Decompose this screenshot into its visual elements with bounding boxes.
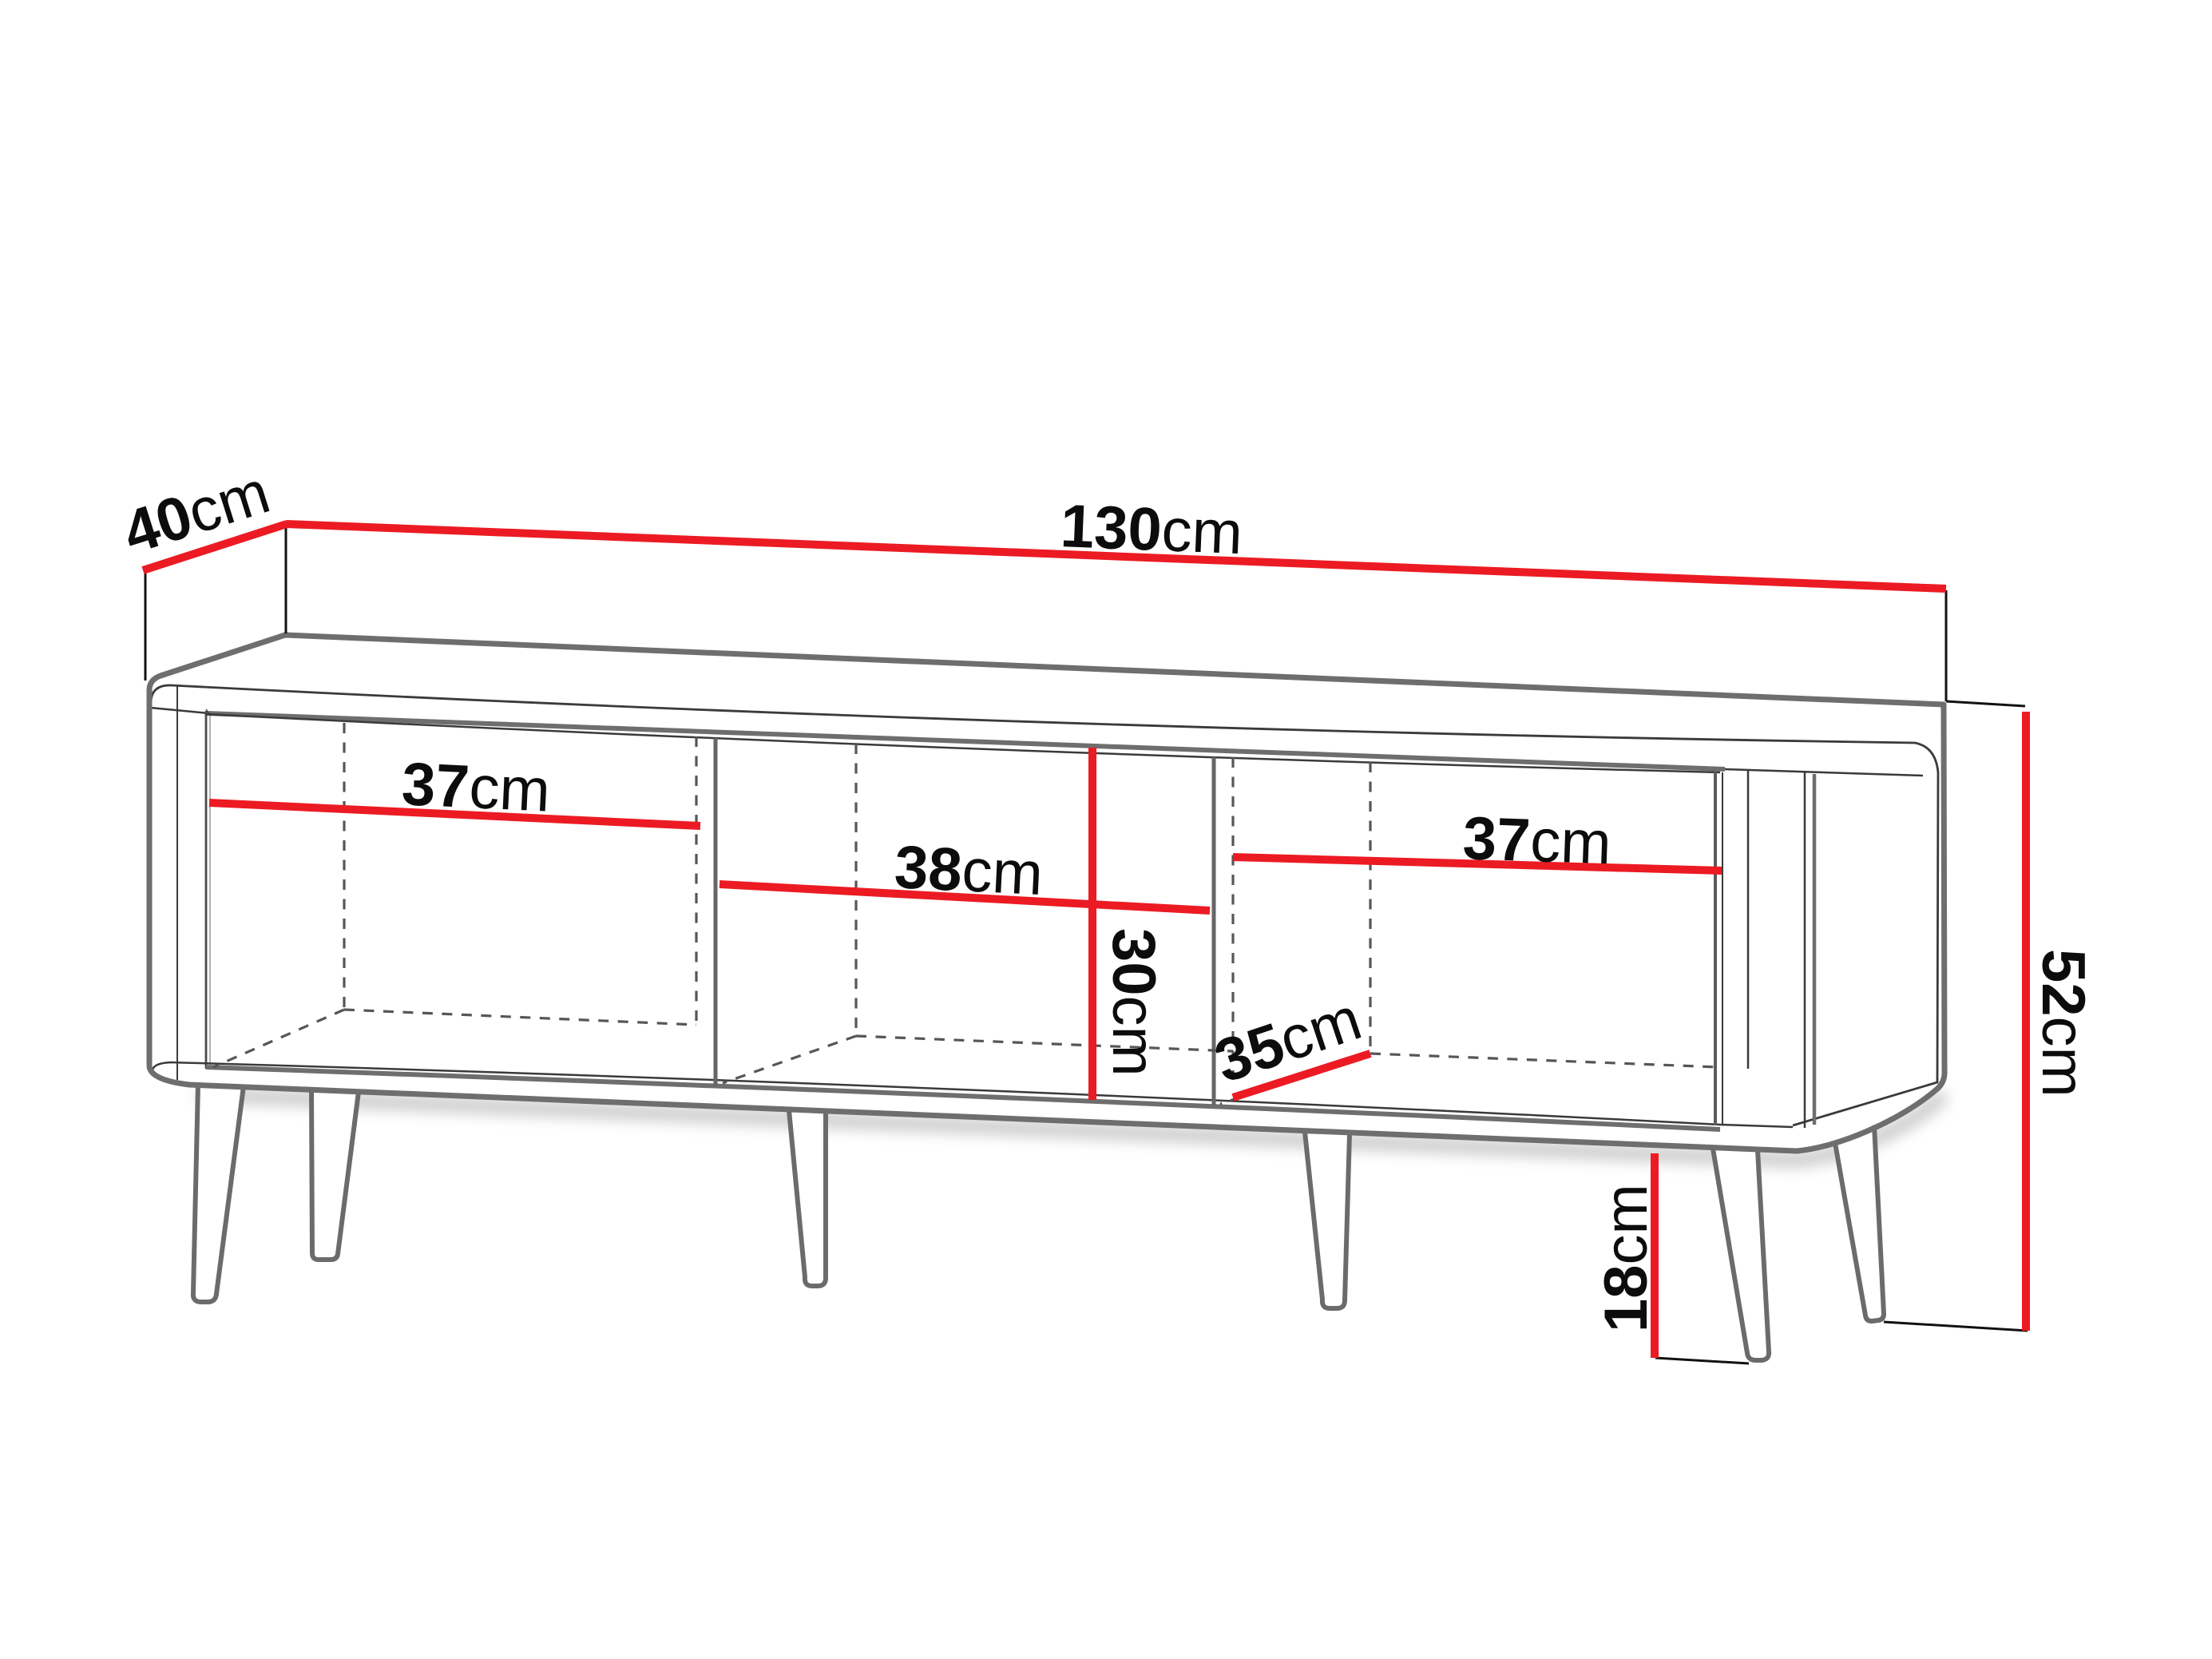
svg-text:18cm: 18cm bbox=[1592, 1184, 1660, 1332]
svg-text:52cm: 52cm bbox=[2029, 949, 2097, 1097]
svg-text:30cm: 30cm bbox=[1100, 928, 1167, 1077]
svg-text:37cm: 37cm bbox=[1461, 804, 1612, 877]
svg-text:37cm: 37cm bbox=[400, 750, 552, 825]
svg-text:130cm: 130cm bbox=[1059, 492, 1243, 567]
svg-text:38cm: 38cm bbox=[893, 833, 1045, 908]
